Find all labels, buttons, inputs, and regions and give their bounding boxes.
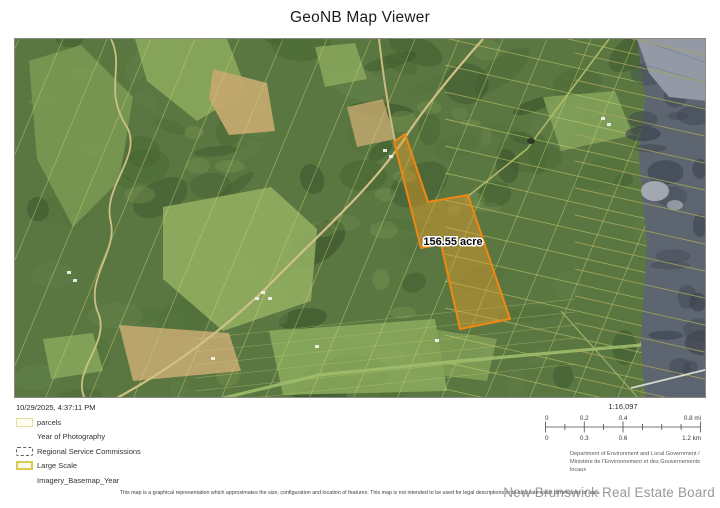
scale-mi-08: 0.8 mi <box>684 415 701 422</box>
geonb-map-viewer-page: GeoNB Map Viewer 156.55 acre 10/29/2025,… <box>0 0 720 508</box>
watermark: New Brunswick Real Estate Board <box>503 485 715 500</box>
map-attribution: Department of Environment and Local Gove… <box>570 450 710 474</box>
scale-bar: 0 0.2 0.4 0.8 mi 0 0.3 0.6 1.2 km <box>544 412 702 442</box>
scale-km-0: 0 <box>545 435 549 442</box>
scale-mi-04: 0.4 <box>619 415 628 422</box>
scale-km-06: 0.6 <box>619 435 628 442</box>
scale-mi-02: 0.2 <box>580 415 589 422</box>
page-title: GeoNB Map Viewer <box>0 9 720 27</box>
scale-km-03: 0.3 <box>580 435 589 442</box>
scale-ratio: 1:16,097 <box>545 402 701 411</box>
scale-km-12: 1.2 km <box>682 435 701 442</box>
legend: parcels Year of Photography Regional Ser… <box>16 416 141 489</box>
scale-mi-0: 0 <box>545 415 549 422</box>
parcel-area-label: 156.55 acre <box>423 236 482 248</box>
aerial-imagery: 156.55 acre <box>15 39 706 398</box>
legend-item-year-of-photography: Year of Photography <box>16 431 141 443</box>
map-timestamp: 10/29/2025, 4:37:11 PM <box>16 403 96 412</box>
legend-item-imagery-basemap-year: Imagery_Basemap_Year <box>16 474 141 486</box>
empty-swatch <box>16 476 33 485</box>
legend-item-parcels: parcels <box>16 416 141 428</box>
map-viewport[interactable]: 156.55 acre <box>14 38 706 398</box>
empty-swatch <box>16 432 33 441</box>
legend-item-large-scale: Large Scale <box>16 460 141 472</box>
dashed-outline-icon <box>16 447 33 456</box>
yellow-outline-icon <box>16 461 33 470</box>
legend-item-regional-service-commissions: Regional Service Commissions <box>16 445 141 457</box>
parcels-outline-icon <box>16 418 33 427</box>
